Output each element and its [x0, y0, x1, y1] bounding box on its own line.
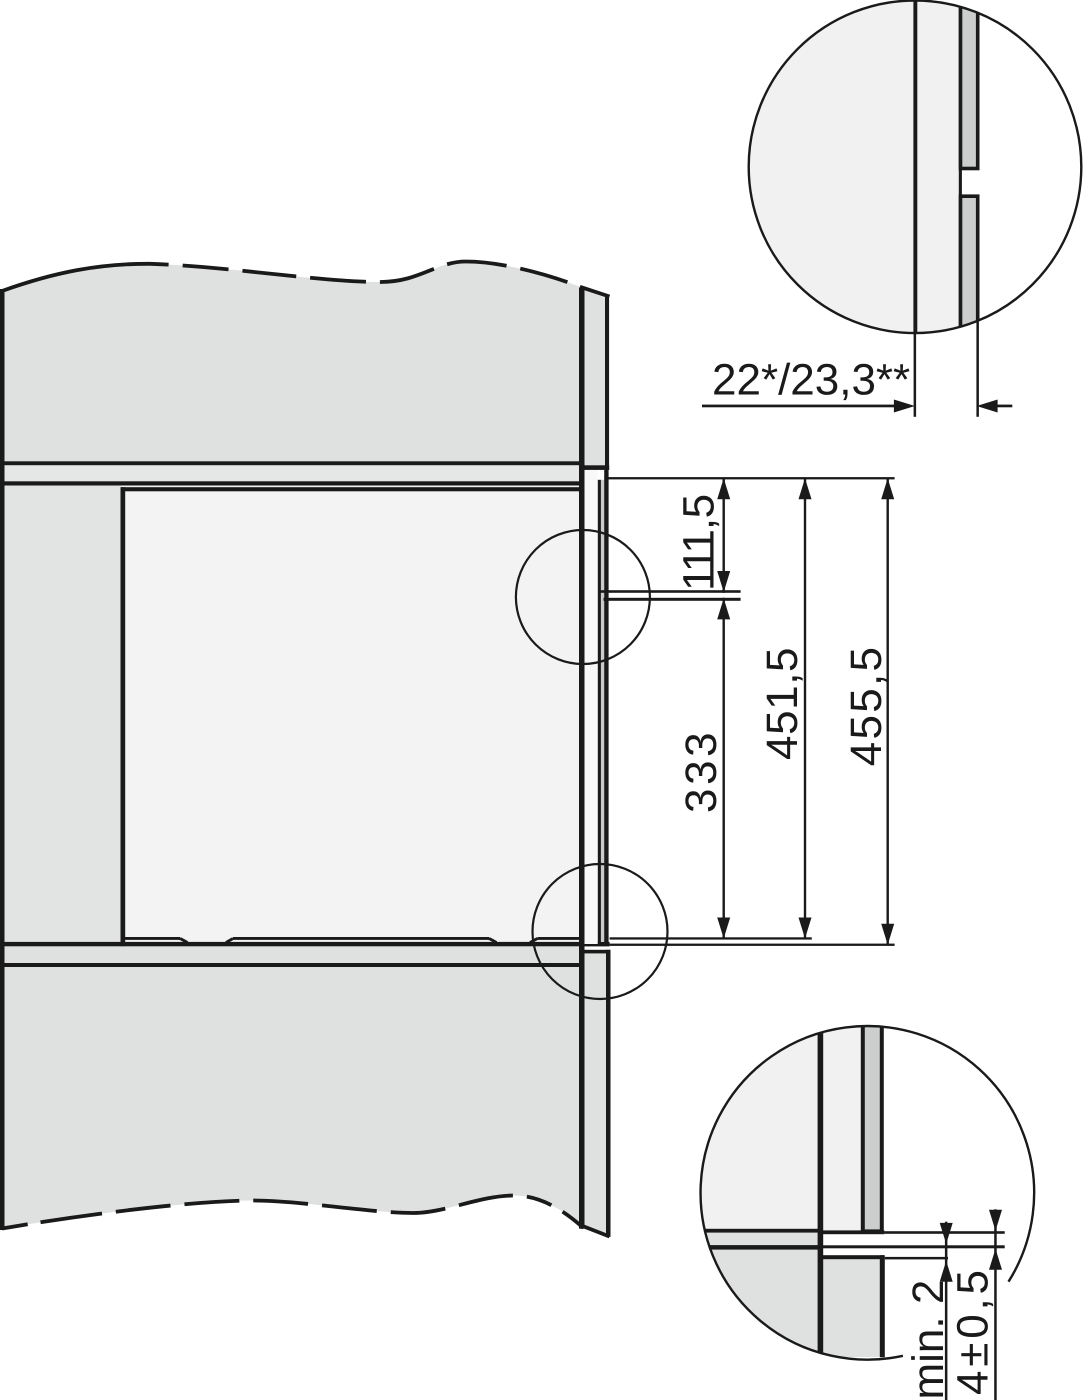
svg-text:451,5: 451,5 — [758, 647, 807, 760]
svg-text:min. 2: min. 2 — [904, 1280, 953, 1400]
svg-text:111,5: 111,5 — [675, 494, 724, 591]
svg-text:333: 333 — [677, 729, 726, 813]
svg-text:455,5: 455,5 — [842, 645, 891, 767]
svg-text:22*/23,3**: 22*/23,3** — [712, 356, 910, 405]
svg-text:4±0,5: 4±0,5 — [949, 1266, 998, 1395]
